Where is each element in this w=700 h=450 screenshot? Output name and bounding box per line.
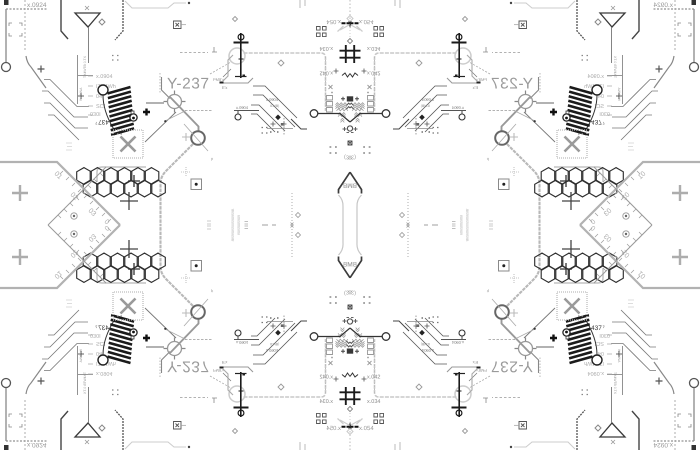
svg-text:PM8'x: PM8'x [213,77,224,82]
svg-text:85989: 85989 [237,215,241,225]
svg-text:4: 4 [95,121,98,126]
svg-text:x.034: x.034 [320,45,333,51]
svg-text:x.0924: x.0924 [27,2,47,9]
svg-text:p: p [211,156,214,161]
svg-text:x.0904: x.0904 [266,97,279,102]
svg-text:x.0904: x.0904 [236,105,249,110]
svg-text:437: 437 [98,118,109,125]
svg-text:x.0904: x.0904 [96,74,113,80]
svg-text:02: 02 [69,191,80,202]
svg-text:TX4WTB 0.TX: TX4WTB 0.TX [83,55,87,78]
svg-text:ILMB): ILMB) [270,104,279,108]
svg-text:x.042: x.042 [320,70,333,76]
svg-text:x.054: x.054 [326,18,341,25]
svg-text:03: 03 [87,207,98,218]
svg-text:0598959B: 0598959B [231,208,235,225]
svg-text:E'x: E'x [222,85,227,90]
svg-text:030I: 030I [90,112,101,118]
svg-text:Y-237: Y-237 [167,76,209,93]
